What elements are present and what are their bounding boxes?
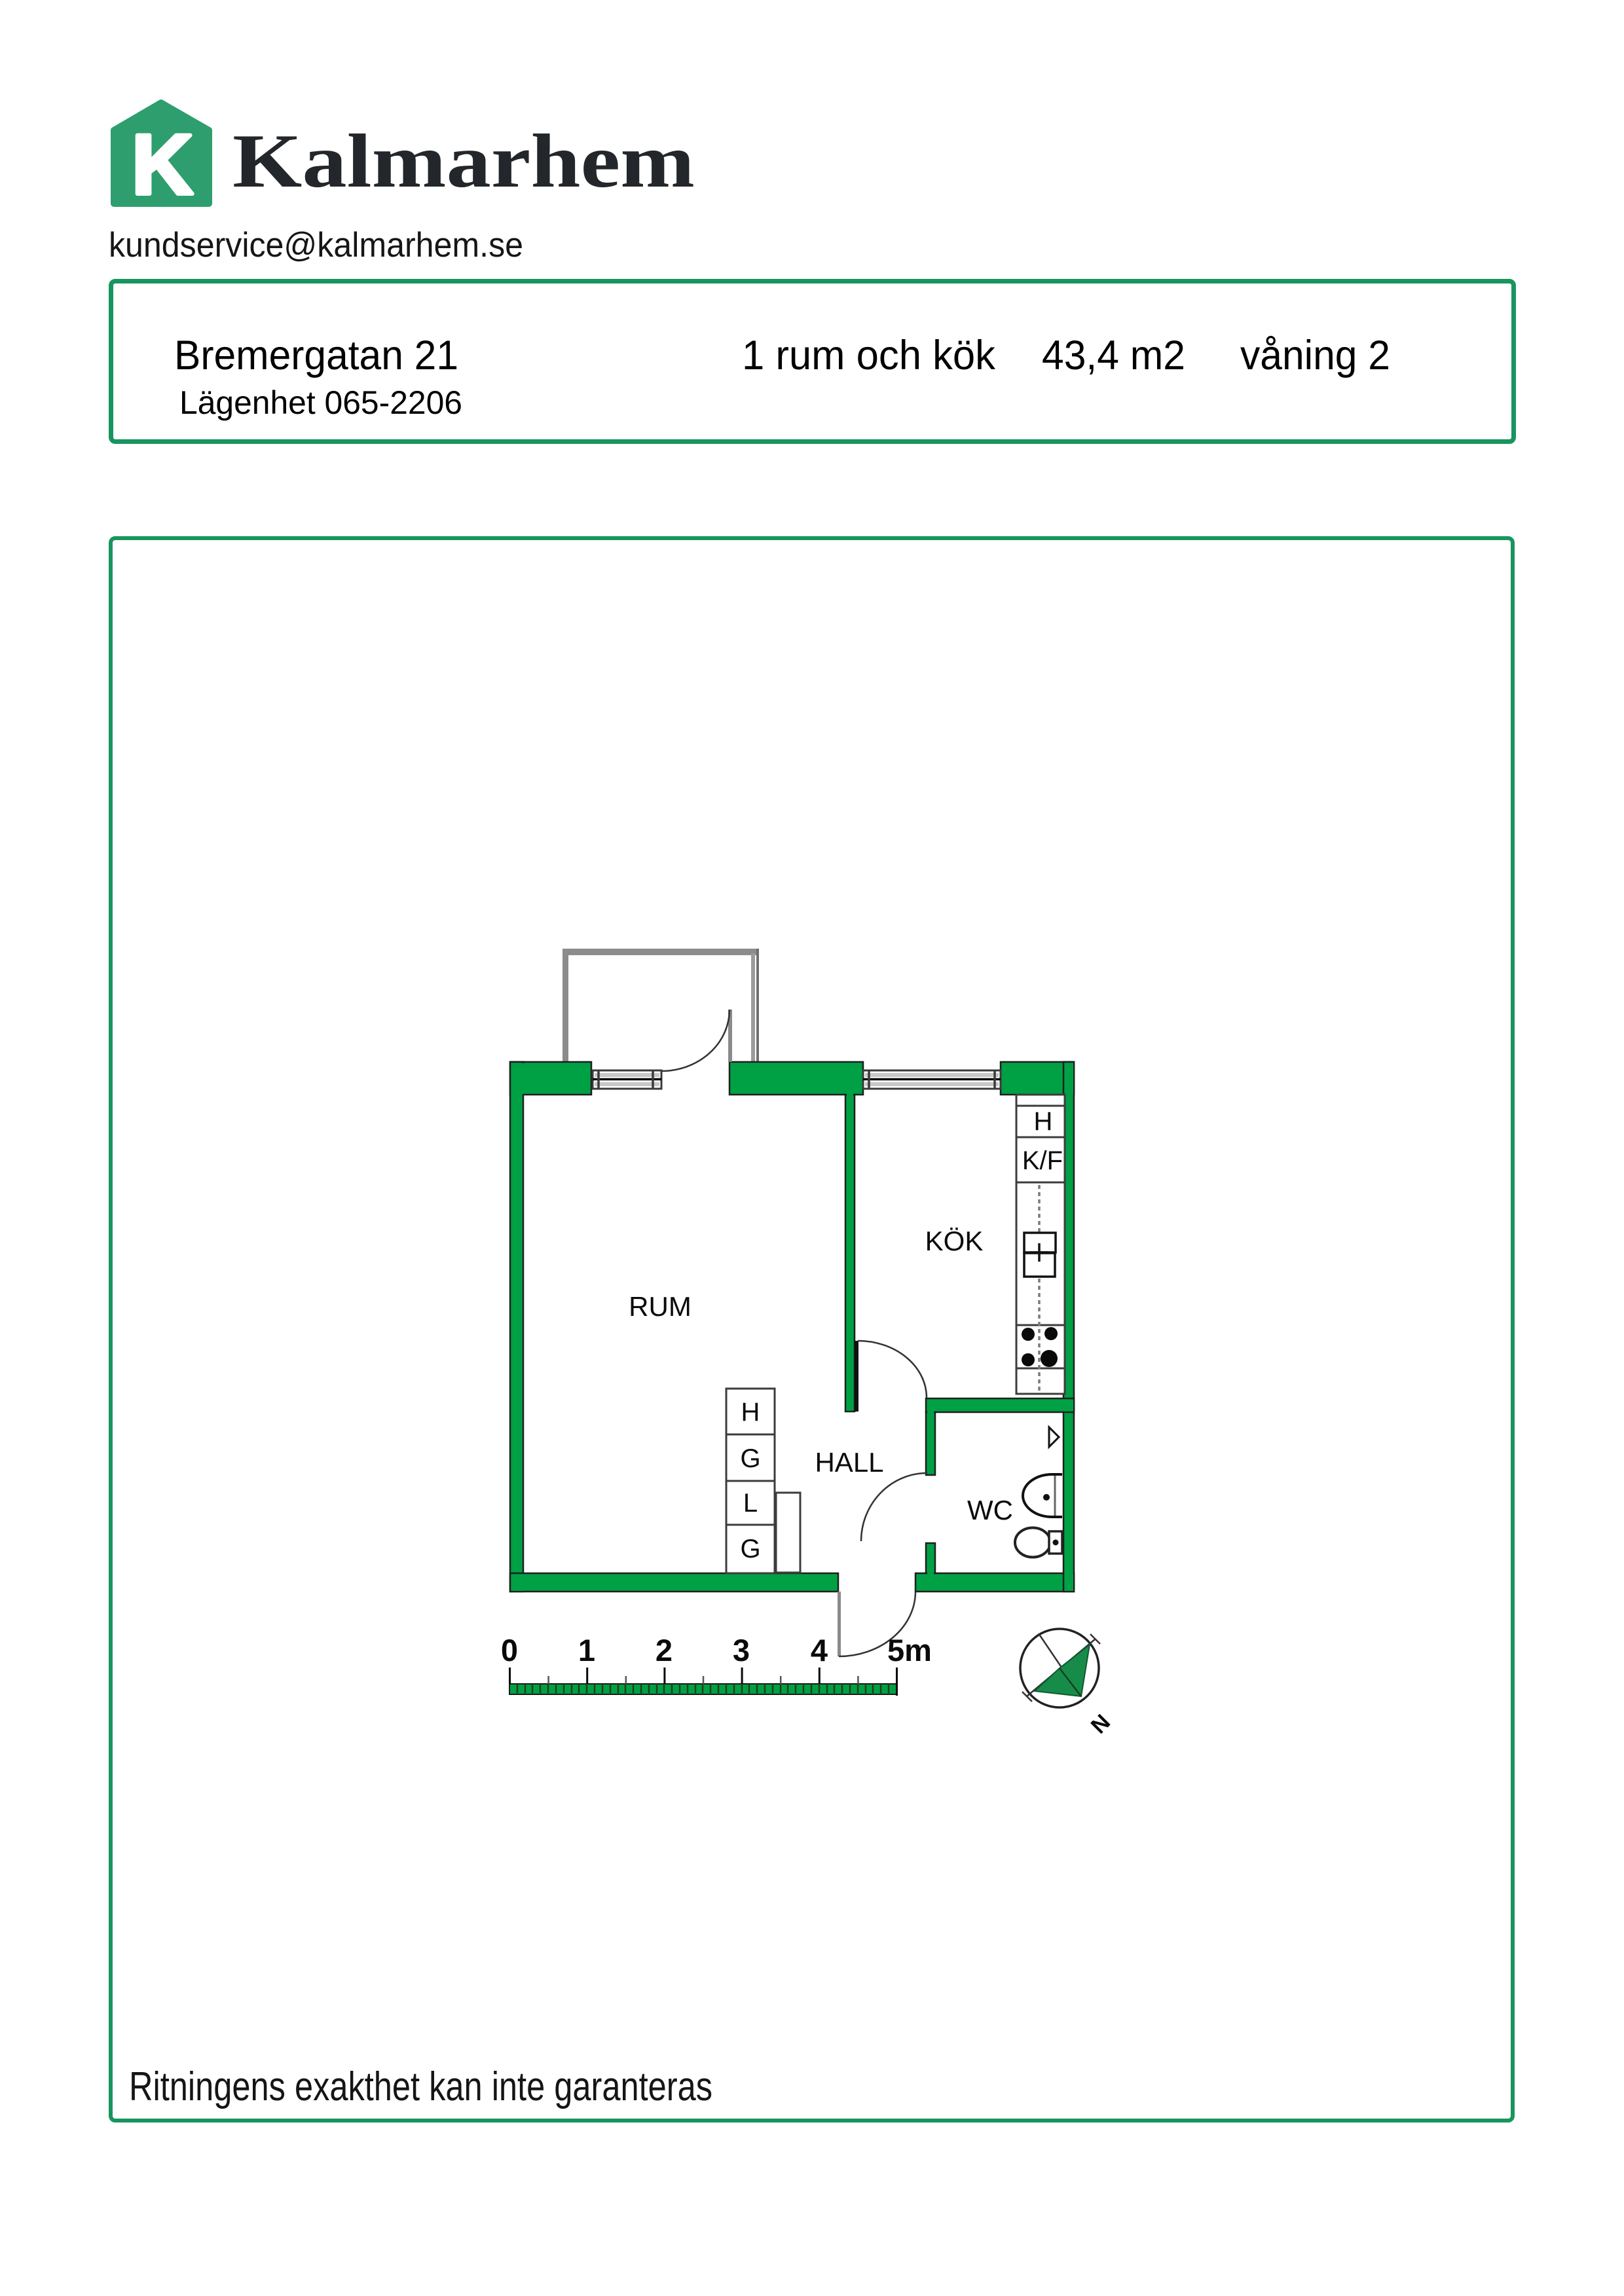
svg-text:Ritningens exakthet kan inte g: Ritningens exakthet kan inte garanteras (129, 2064, 712, 2109)
svg-text:L: L (743, 1489, 758, 1518)
svg-text:2: 2 (655, 1633, 673, 1667)
svg-text:3: 3 (733, 1633, 750, 1667)
svg-text:KÖK: KÖK (925, 1226, 984, 1256)
svg-text:1: 1 (578, 1633, 595, 1667)
svg-text:G: G (740, 1535, 760, 1563)
svg-text:G: G (740, 1444, 760, 1473)
svg-text:WC: WC (967, 1495, 1013, 1525)
svg-text:K/F: K/F (1022, 1146, 1063, 1175)
svg-text:RUM: RUM (629, 1291, 692, 1322)
svg-text:N: N (1086, 1709, 1115, 1738)
svg-text:0: 0 (501, 1633, 518, 1667)
svg-text:HALL: HALL (815, 1447, 883, 1478)
svg-text:5m: 5m (887, 1633, 932, 1667)
svg-text:H: H (741, 1398, 760, 1427)
svg-text:H: H (1034, 1107, 1053, 1136)
svg-text:4: 4 (811, 1633, 828, 1667)
